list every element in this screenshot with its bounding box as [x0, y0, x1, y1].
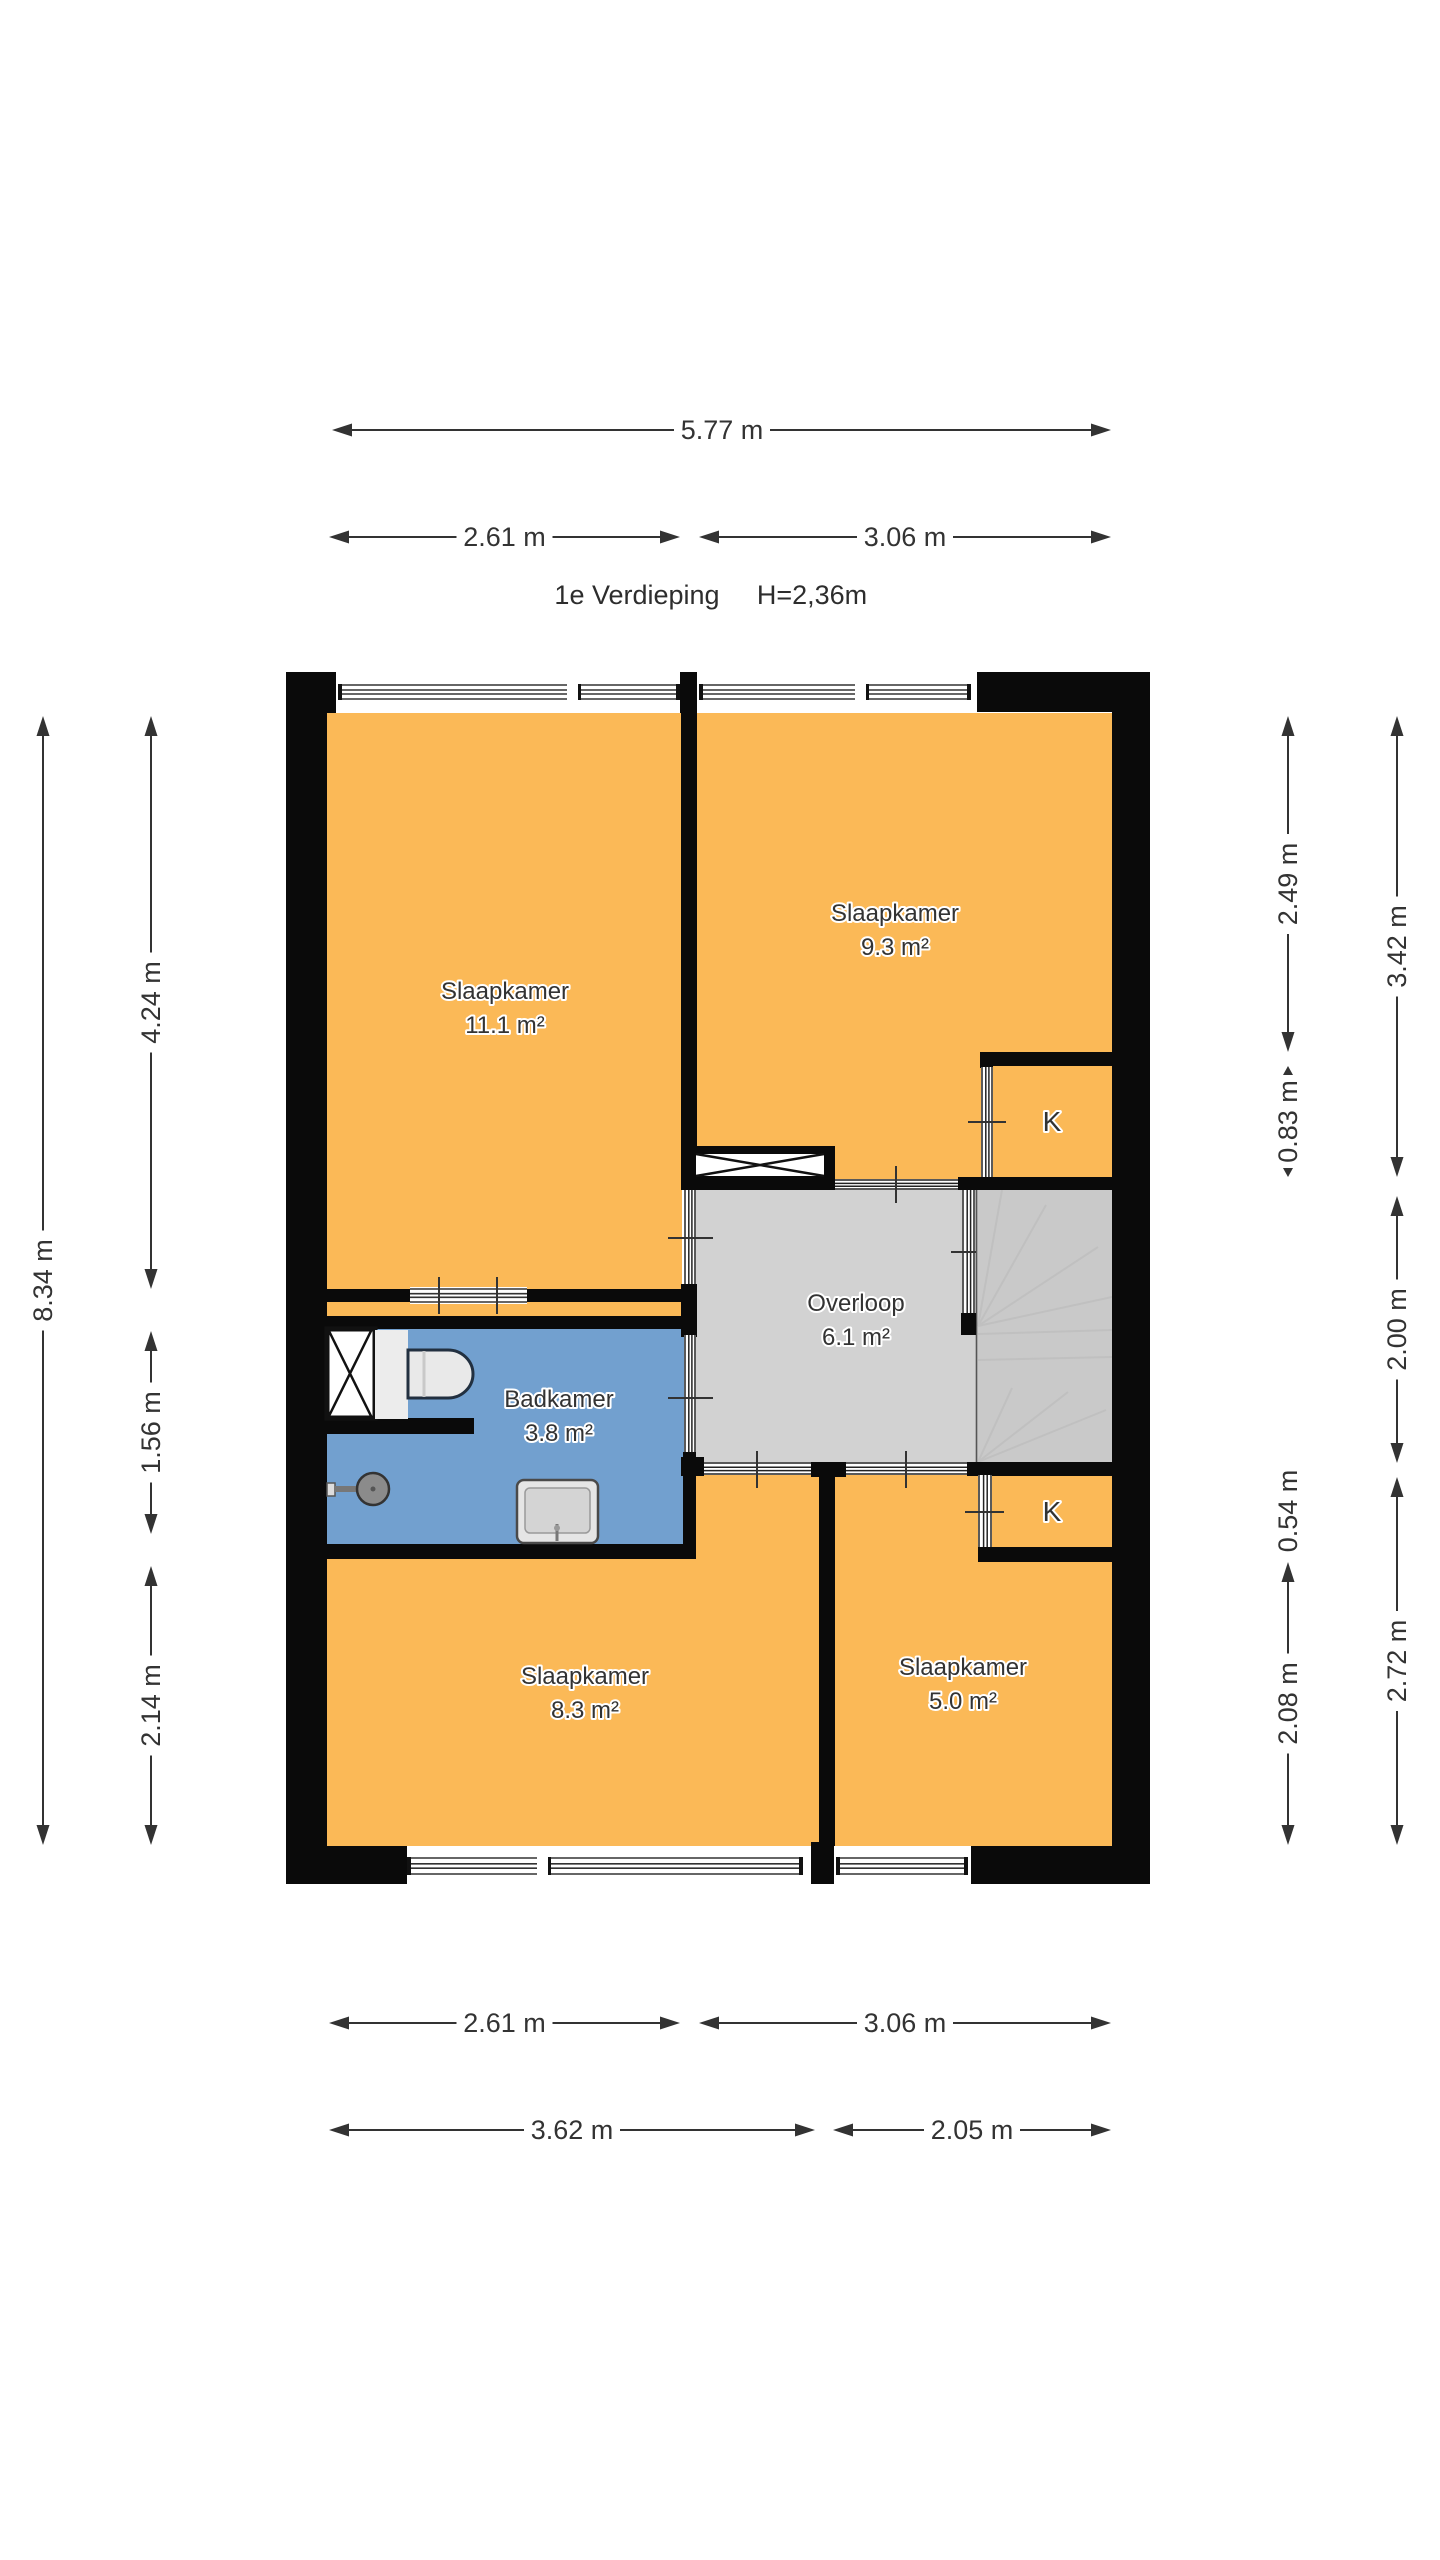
svg-text:Slaapkamer: Slaapkamer	[521, 1663, 649, 1690]
svg-text:2.61 m: 2.61 m	[463, 2008, 546, 2038]
svg-text:0.54 m: 0.54 m	[1273, 1470, 1303, 1553]
svg-text:2.61 m: 2.61 m	[463, 522, 546, 552]
svg-text:2.05 m: 2.05 m	[931, 2115, 1014, 2145]
svg-text:1.56 m: 1.56 m	[136, 1391, 166, 1474]
svg-text:Overloop: Overloop	[807, 1290, 904, 1317]
svg-text:1e Verdieping: 1e Verdieping	[554, 580, 719, 610]
svg-text:11.1 m²: 11.1 m²	[465, 1012, 545, 1039]
svg-text:9.3 m²: 9.3 m²	[861, 934, 929, 961]
svg-text:Slaapkamer: Slaapkamer	[831, 900, 959, 927]
svg-text:H=2,36m: H=2,36m	[757, 580, 867, 610]
svg-text:2.14 m: 2.14 m	[136, 1664, 166, 1747]
svg-text:K: K	[1043, 1496, 1062, 1527]
svg-text:6.1 m²: 6.1 m²	[822, 1324, 890, 1351]
svg-text:8.34 m: 8.34 m	[28, 1239, 58, 1322]
svg-text:2.72 m: 2.72 m	[1382, 1620, 1412, 1703]
svg-text:2.49 m: 2.49 m	[1273, 843, 1303, 926]
svg-text:0.83 m: 0.83 m	[1273, 1080, 1303, 1163]
svg-text:4.24 m: 4.24 m	[136, 961, 166, 1044]
svg-text:5.77 m: 5.77 m	[681, 415, 764, 445]
svg-text:2.08 m: 2.08 m	[1273, 1662, 1303, 1745]
svg-text:3.06 m: 3.06 m	[864, 2008, 947, 2038]
svg-text:3.06 m: 3.06 m	[864, 522, 947, 552]
svg-text:2.00 m: 2.00 m	[1382, 1288, 1412, 1371]
svg-text:3.8 m²: 3.8 m²	[525, 1420, 593, 1447]
svg-text:Badkamer: Badkamer	[504, 1386, 613, 1413]
svg-text:Slaapkamer: Slaapkamer	[899, 1654, 1027, 1681]
svg-text:Slaapkamer: Slaapkamer	[441, 978, 569, 1005]
svg-text:8.3 m²: 8.3 m²	[551, 1697, 619, 1724]
svg-text:3.62 m: 3.62 m	[531, 2115, 614, 2145]
svg-text:K: K	[1043, 1106, 1062, 1137]
svg-text:3.42 m: 3.42 m	[1382, 905, 1412, 988]
svg-text:5.0 m²: 5.0 m²	[929, 1688, 997, 1715]
